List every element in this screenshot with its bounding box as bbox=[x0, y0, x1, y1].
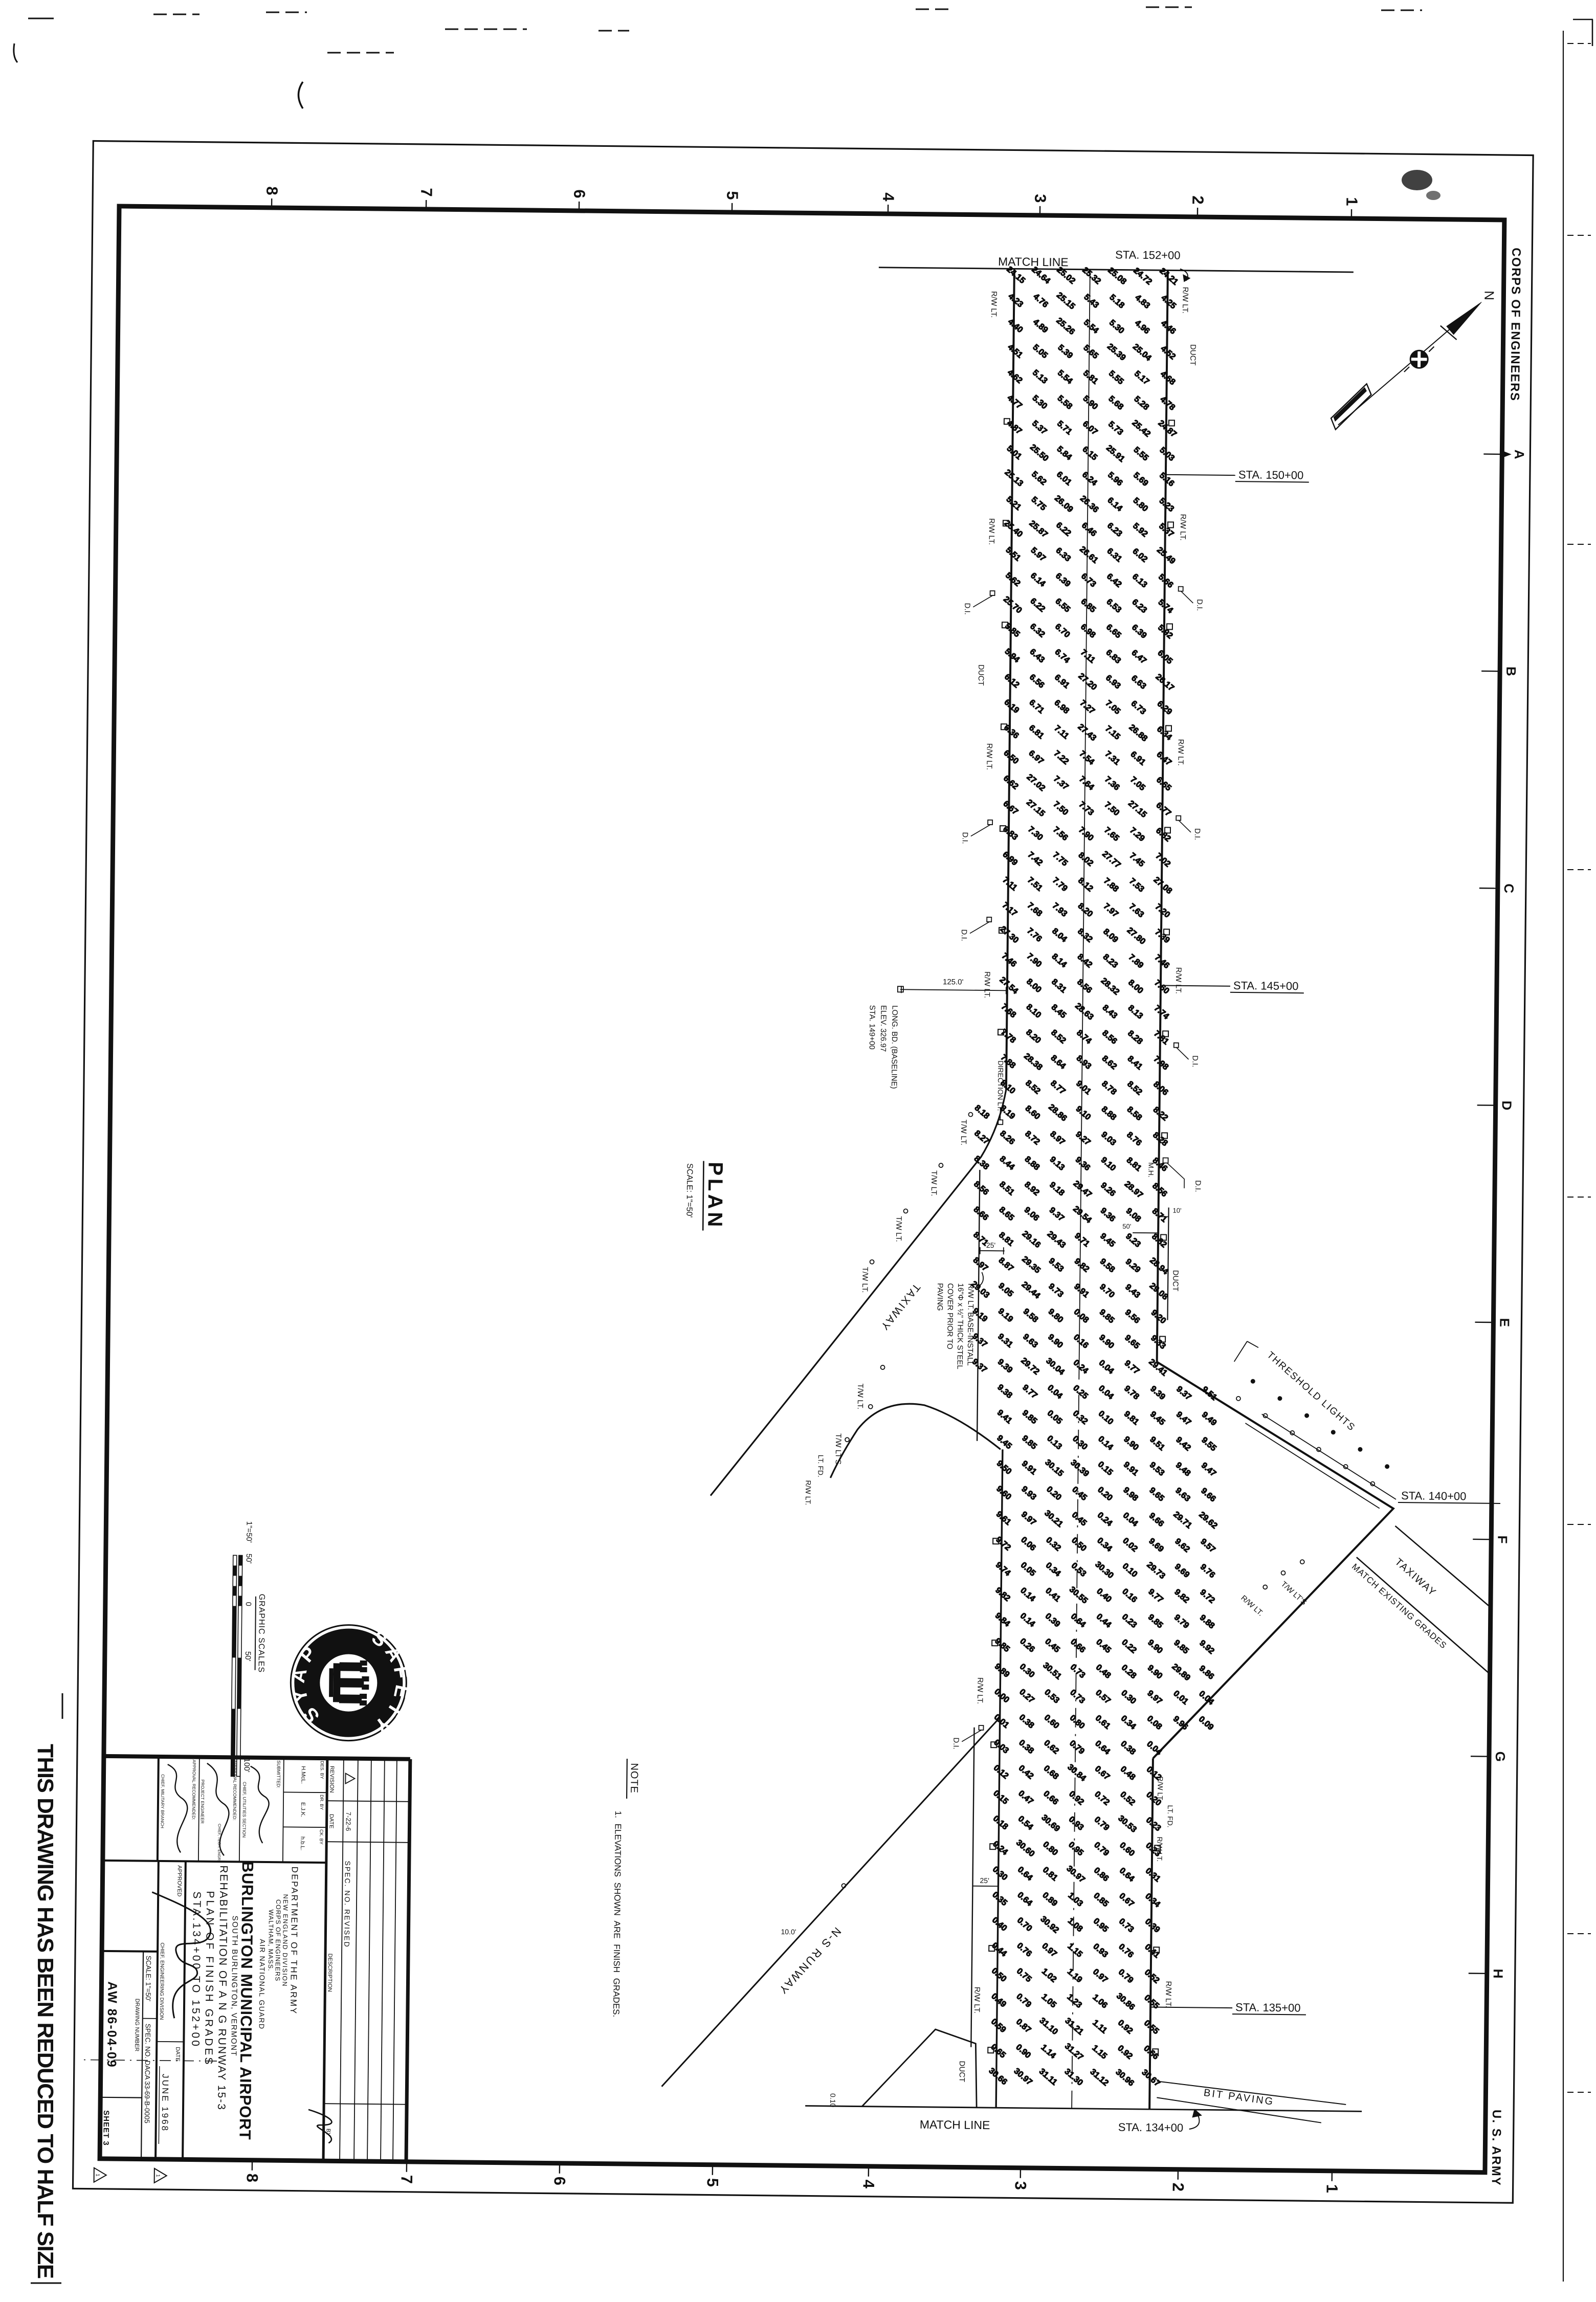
svg-text:h.b.L.: h.b.L. bbox=[299, 1836, 305, 1851]
svg-text:R/W LT.: R/W LT. bbox=[1179, 514, 1188, 541]
svg-text:R/W LT. BASE-INSTALL: R/W LT. BASE-INSTALL bbox=[966, 1283, 976, 1366]
svg-text:50': 50' bbox=[1122, 1223, 1131, 1230]
svg-text:4: 4 bbox=[860, 2180, 878, 2189]
svg-text:PROJECT ENGINEER: PROJECT ENGINEER bbox=[200, 1780, 206, 1824]
svg-text:DATE: DATE bbox=[328, 1814, 334, 1829]
svg-text:DUCT: DUCT bbox=[958, 2061, 966, 2082]
svg-text:SUBMITTED:: SUBMITTED: bbox=[276, 1760, 281, 1788]
svg-text:DR. BY: DR. BY bbox=[319, 1795, 324, 1810]
svg-text:T/W LT.: T/W LT. bbox=[860, 1267, 870, 1293]
svg-text:0.10: 0.10 bbox=[829, 2093, 837, 2108]
svg-text:1. ELEVATIONS SHOWN ARE FIN: 1. ELEVATIONS SHOWN ARE FINISH GRADES. bbox=[611, 1811, 623, 2018]
svg-text:50': 50' bbox=[243, 1651, 252, 1662]
svg-text:SPEC. NO. DACA 33-69-B-0005: SPEC. NO. DACA 33-69-B-0005 bbox=[143, 2024, 152, 2123]
svg-text:STA. 149+00: STA. 149+00 bbox=[868, 1005, 877, 1050]
svg-text:25': 25' bbox=[980, 1876, 989, 1885]
svg-text:SCALE: 1"=50': SCALE: 1"=50' bbox=[684, 1163, 694, 1218]
svg-text:1: 1 bbox=[95, 2174, 100, 2177]
svg-text:D.I.: D.I. bbox=[963, 603, 971, 615]
svg-text:R/W LT.: R/W LT. bbox=[1176, 739, 1185, 766]
svg-text:DIRECTION LT.: DIRECTION LT. bbox=[996, 1060, 1005, 1111]
svg-text:1: 1 bbox=[1343, 197, 1361, 206]
svg-text:REHABILITATION OF A N G RUNWAY: REHABILITATION OF A N G RUNWAY 15-3 bbox=[215, 1865, 230, 2111]
svg-text:R/W LT.: R/W LT. bbox=[976, 1677, 985, 1704]
svg-text:6: 6 bbox=[570, 189, 588, 198]
svg-text:STA. 152+00: STA. 152+00 bbox=[1115, 248, 1181, 261]
svg-text:2: 2 bbox=[1189, 195, 1207, 205]
svg-text:R/W LT.: R/W LT. bbox=[1174, 967, 1183, 994]
svg-text:100': 100' bbox=[242, 1758, 251, 1773]
svg-text:5: 5 bbox=[704, 2178, 722, 2187]
svg-text:CHIEF, MILITARY BRANCH: CHIEF, MILITARY BRANCH bbox=[160, 1774, 165, 1828]
svg-text:R/W LT.: R/W LT. bbox=[1156, 1776, 1164, 1801]
svg-text:25': 25' bbox=[986, 1241, 995, 1249]
svg-text:LONG. BD. (BASELINE): LONG. BD. (BASELINE) bbox=[890, 1005, 899, 1089]
svg-text:CK. BY: CK. BY bbox=[319, 1829, 324, 1845]
svg-text:10.0': 10.0' bbox=[781, 1928, 796, 1936]
svg-text:R/W LT.: R/W LT. bbox=[1181, 287, 1190, 314]
svg-text:50': 50' bbox=[245, 1554, 253, 1564]
svg-text:H: H bbox=[1491, 1969, 1506, 1979]
svg-text:DEPARTMENT OF THE ARMY: DEPARTMENT OF THE ARMY bbox=[289, 1867, 300, 2015]
svg-text:8: 8 bbox=[263, 186, 281, 195]
svg-text:STA. 140+00: STA. 140+00 bbox=[1401, 1489, 1467, 1502]
svg-text:APPROVAL RECOMMENDED:: APPROVAL RECOMMENDED: bbox=[232, 1760, 238, 1820]
svg-text:PLAN: PLAN bbox=[703, 1162, 726, 1230]
svg-text:H.McL.: H.McL. bbox=[300, 1766, 306, 1784]
svg-text:NOTE: NOTE bbox=[628, 1763, 640, 1794]
svg-text:R/W LT.: R/W LT. bbox=[972, 1987, 982, 2013]
svg-text:E.J.K.: E.J.K. bbox=[300, 1802, 306, 1817]
svg-text:COVER PRIOR TO: COVER PRIOR TO bbox=[945, 1283, 955, 1349]
svg-text:MATCH LINE: MATCH LINE bbox=[998, 255, 1069, 269]
svg-text:PLAN OF FINISH GRADES: PLAN OF FINISH GRADES bbox=[203, 1891, 216, 2066]
svg-text:D.I.: D.I. bbox=[1193, 828, 1202, 840]
svg-text:DUCT: DUCT bbox=[977, 665, 985, 686]
svg-text:T/W LT.: T/W LT. bbox=[894, 1216, 903, 1242]
svg-text:R/W LT.: R/W LT. bbox=[1164, 1981, 1173, 2007]
svg-text:SOUTH BURLINGTON, VERMONT: SOUTH BURLINGTON, VERMONT bbox=[229, 1916, 239, 2057]
svg-text:3: 3 bbox=[1031, 194, 1049, 203]
svg-text:T/W LT'S: T/W LT'S bbox=[834, 1433, 843, 1465]
svg-text:SCALE: 1"=50': SCALE: 1"=50' bbox=[144, 1956, 152, 2002]
svg-text:U. S. ARMY: U. S. ARMY bbox=[1489, 2110, 1503, 2186]
svg-text:5: 5 bbox=[723, 191, 741, 200]
svg-text:6: 6 bbox=[551, 2177, 569, 2186]
svg-text:REVISION: REVISION bbox=[328, 1766, 335, 1793]
svg-text:M.H.: M.H. bbox=[1147, 1162, 1155, 1178]
svg-text:8: 8 bbox=[243, 2174, 261, 2183]
svg-text:R/W LT.: R/W LT. bbox=[985, 743, 994, 770]
svg-text:D.I.: D.I. bbox=[961, 832, 969, 844]
svg-text:DES. BY: DES. BY bbox=[319, 1761, 324, 1779]
svg-text:1: 1 bbox=[155, 2174, 161, 2177]
svg-text:SHEET 3: SHEET 3 bbox=[101, 2110, 110, 2146]
svg-text:D.I.: D.I. bbox=[951, 1737, 960, 1750]
svg-text:G: G bbox=[1493, 1752, 1508, 1762]
svg-text:SPEC. NO. REVISED: SPEC. NO. REVISED bbox=[343, 1861, 352, 1947]
svg-text:DUCT: DUCT bbox=[1188, 344, 1197, 366]
svg-text:THIS DRAWING HAS BEEN REDUCED: THIS DRAWING HAS BEEN REDUCED TO HALF SI… bbox=[33, 1744, 58, 2279]
svg-text:B: B bbox=[1503, 667, 1519, 676]
svg-text:DRAWING NUMBER: DRAWING NUMBER bbox=[134, 1999, 140, 2052]
svg-text:A: A bbox=[1512, 450, 1527, 459]
svg-text:AIR NATIONAL GUARD: AIR NATIONAL GUARD bbox=[258, 1939, 267, 2029]
svg-text:C: C bbox=[1501, 883, 1517, 893]
svg-text:7-22-6: 7-22-6 bbox=[344, 1812, 352, 1831]
svg-text:D.I.: D.I. bbox=[1193, 1180, 1202, 1192]
svg-text:R/W LT.: R/W LT. bbox=[983, 971, 992, 998]
svg-text:3: 3 bbox=[1012, 2181, 1030, 2190]
svg-text:10': 10' bbox=[1173, 1207, 1182, 1214]
svg-text:CHIEF, TECH. ENGR.: CHIEF, TECH. ENGR. bbox=[217, 1824, 222, 1862]
svg-text:STA. 134+00: STA. 134+00 bbox=[1118, 2121, 1184, 2134]
svg-text:CORPS OF ENGINEERS: CORPS OF ENGINEERS bbox=[1508, 248, 1523, 402]
svg-text:LT. FD.: LT. FD. bbox=[1166, 1805, 1174, 1828]
svg-text:STA. 150+00: STA. 150+00 bbox=[1238, 468, 1304, 481]
svg-text:D: D bbox=[1499, 1100, 1515, 1110]
svg-text:R/W LT.: R/W LT. bbox=[987, 518, 996, 545]
svg-text:7: 7 bbox=[398, 2175, 416, 2184]
svg-text:E: E bbox=[1497, 1318, 1512, 1327]
svg-text:T/W LT.: T/W LT. bbox=[929, 1170, 939, 1197]
svg-text:CHIEF, ENGINEERING DIVISION: CHIEF, ENGINEERING DIVISION bbox=[159, 1942, 165, 2020]
svg-text:D.I.: D.I. bbox=[1195, 599, 1204, 611]
svg-text:R/W LT.: R/W LT. bbox=[1156, 1836, 1164, 1862]
svg-text:APPROVED: APPROVED bbox=[176, 1865, 183, 1896]
svg-text:125.0': 125.0' bbox=[943, 978, 964, 986]
svg-text:PAVING: PAVING bbox=[936, 1283, 945, 1311]
svg-text:GRAPHIC SCALES: GRAPHIC SCALES bbox=[257, 1594, 267, 1673]
svg-text:1: 1 bbox=[1323, 2184, 1341, 2194]
svg-text:DATE: DATE bbox=[174, 2047, 181, 2062]
svg-text:2: 2 bbox=[1169, 2183, 1187, 2192]
svg-text:DUCT: DUCT bbox=[1171, 1270, 1180, 1292]
svg-text:APPROVAL RECOMMENDED:: APPROVAL RECOMMENDED: bbox=[191, 1760, 197, 1820]
svg-text:T/W LT.: T/W LT. bbox=[959, 1119, 968, 1145]
svg-text:JUNE 1968: JUNE 1968 bbox=[160, 2074, 170, 2132]
svg-text:AW 86-04-09: AW 86-04-09 bbox=[104, 1981, 120, 2068]
svg-text:N: N bbox=[1481, 291, 1497, 300]
svg-text:16"Φ x ½" THICK STEEL: 16"Φ x ½" THICK STEEL bbox=[955, 1283, 965, 1369]
svg-text:T/W LT.: T/W LT. bbox=[856, 1383, 865, 1409]
svg-text:F: F bbox=[1495, 1535, 1510, 1543]
svg-text:LT. FD.: LT. FD. bbox=[816, 1455, 825, 1477]
svg-text:R/W LT.: R/W LT. bbox=[804, 1480, 812, 1505]
svg-text:WALTHAM, MASS.: WALTHAM, MASS. bbox=[267, 1910, 275, 1972]
svg-text:4: 4 bbox=[879, 192, 897, 202]
svg-text:MATCH LINE: MATCH LINE bbox=[920, 2118, 990, 2132]
svg-text:DESCRIPTION: DESCRIPTION bbox=[326, 1954, 333, 1992]
svg-text:CHIEF, UTILITIES SECTION: CHIEF, UTILITIES SECTION bbox=[241, 1782, 247, 1838]
svg-text:7: 7 bbox=[417, 188, 435, 197]
svg-text:D.I.: D.I. bbox=[1190, 1055, 1199, 1068]
svg-text:0: 0 bbox=[244, 1602, 253, 1606]
svg-text:BURLINGTON MUNICIPAL AIRPORT: BURLINGTON MUNICIPAL AIRPORT bbox=[236, 1861, 256, 2140]
svg-text:R/W LT.: R/W LT. bbox=[989, 291, 999, 318]
svg-text:ELEV. 326.97: ELEV. 326.97 bbox=[879, 1005, 888, 1052]
svg-text:STA. 135+00: STA. 135+00 bbox=[1235, 2001, 1301, 2014]
svg-text:1"=50': 1"=50' bbox=[245, 1521, 253, 1543]
svg-text:D.I.: D.I. bbox=[960, 929, 968, 941]
svg-text:STA. 145+00: STA. 145+00 bbox=[1233, 979, 1299, 992]
